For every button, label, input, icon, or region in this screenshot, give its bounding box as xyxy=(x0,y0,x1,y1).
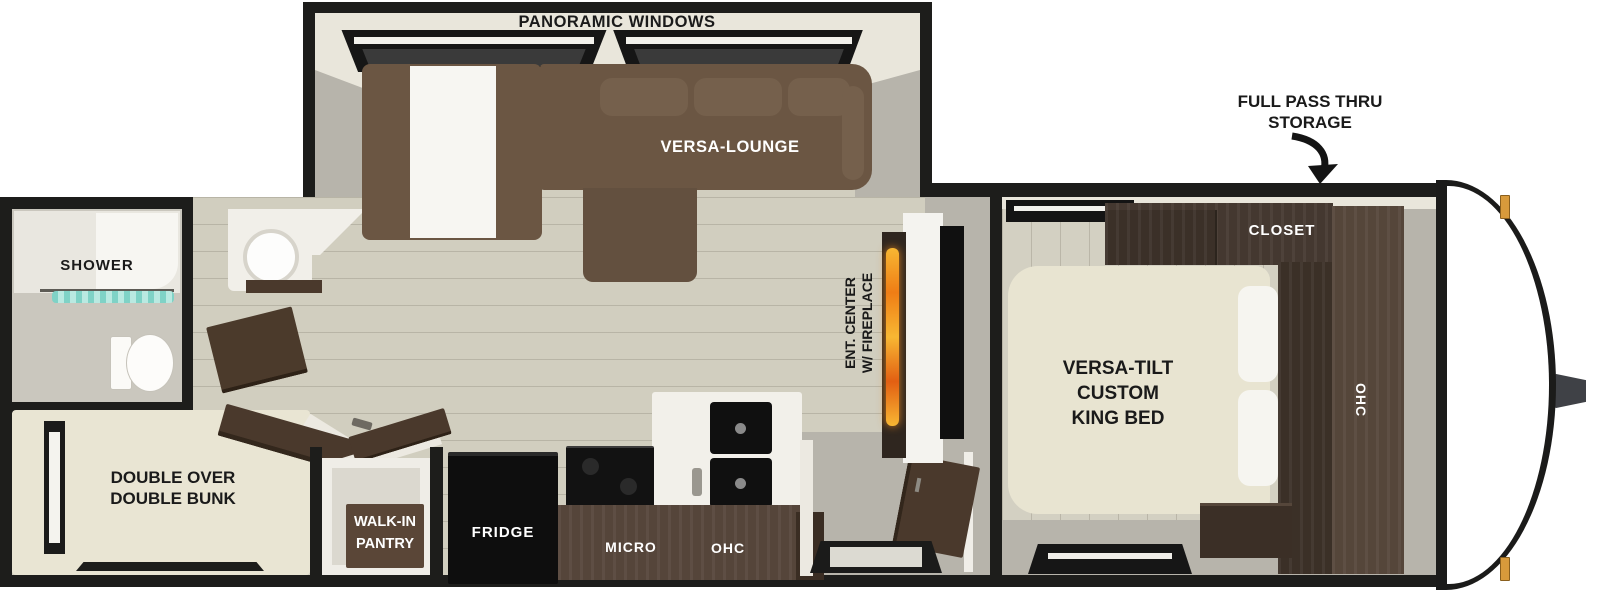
bunk-label-line1: DOUBLE OVER xyxy=(48,468,298,488)
panoramic-windows-label: PANORAMIC WINDOWS xyxy=(367,13,867,32)
micro-label: MICRO xyxy=(566,539,696,555)
stove-burner-icon2 xyxy=(620,478,637,495)
vanity-base xyxy=(246,280,322,293)
entry-wall-band xyxy=(800,440,813,576)
kitchen-ohc-label: OHC xyxy=(688,540,768,556)
shower-curtain xyxy=(52,291,174,303)
pillow-top xyxy=(1238,286,1278,382)
bunk-label-line2: DOUBLE BUNK xyxy=(48,489,298,509)
kitchen-faucet-icon xyxy=(692,468,702,496)
bedroom-ohc-label: OHC xyxy=(1353,370,1369,430)
storage-arrow-icon xyxy=(1282,132,1346,184)
sofa-bed-mattress xyxy=(410,66,496,238)
king-bed-label-line1: VERSA-TILT xyxy=(1018,358,1218,380)
fireplace-flame-icon xyxy=(886,248,899,426)
versa-lounge-label: VERSA-LOUNGE xyxy=(600,138,860,157)
bedroom-window-bottom-glass xyxy=(1048,553,1172,559)
floorplan-canvas: PANORAMIC WINDOWS SHOWER DOUBLE OVER DOU… xyxy=(0,0,1600,599)
toilet-bowl xyxy=(126,334,174,392)
pantry-wall-left xyxy=(310,447,322,587)
fridge xyxy=(448,452,558,584)
sofa-arm-right xyxy=(842,86,864,180)
nightstand xyxy=(1200,503,1292,558)
sofa-back-cushion3 xyxy=(788,78,850,116)
bunk-edge-trim xyxy=(76,562,264,571)
bedroom-window-bottom xyxy=(1028,544,1192,574)
closet-left-wing xyxy=(1105,210,1217,265)
stove xyxy=(566,446,654,508)
panoramic-window-right-glass xyxy=(626,37,852,44)
sofa-back-cushion1 xyxy=(600,78,688,116)
sink-drain-top-icon xyxy=(735,423,746,434)
ent-center-cabinet xyxy=(903,213,943,463)
tv-panel xyxy=(940,226,964,439)
sofa-back-cushion2 xyxy=(694,78,782,116)
pantry-label-line1: WALK-IN xyxy=(346,514,424,530)
king-bed-label-line3: KING BED xyxy=(1018,408,1218,430)
bathroom-sink xyxy=(243,229,299,285)
entry-step-tread xyxy=(830,547,922,567)
sink-drain-bottom-icon xyxy=(735,478,746,489)
versa-lounge-chaise xyxy=(583,188,697,282)
pillow-bottom xyxy=(1238,390,1278,486)
ent-center-label-line2: W/ FIREPLACE xyxy=(859,248,876,398)
storage-label-line2: STORAGE xyxy=(1200,113,1420,133)
ent-center-label-line1: ENT. CENTER xyxy=(842,248,859,398)
storage-label-line1: FULL PASS THRU xyxy=(1200,92,1420,112)
panoramic-window-left-glass xyxy=(354,37,594,44)
pantry-label-line2: PANTRY xyxy=(346,536,424,552)
front-cap xyxy=(1447,186,1549,584)
ent-center-label: ENT. CENTER W/ FIREPLACE xyxy=(842,248,878,398)
slide-side-wall-left xyxy=(315,70,362,197)
shower-label: SHOWER xyxy=(14,257,180,274)
pantry-wall-right xyxy=(430,447,443,587)
fridge-label: FRIDGE xyxy=(448,524,558,541)
stove-burner-icon xyxy=(582,458,599,475)
shower-pan xyxy=(96,213,178,289)
marker-light-bottom-icon xyxy=(1500,557,1510,581)
closet-label: CLOSET xyxy=(1212,222,1352,239)
king-bed-label-line2: CUSTOM xyxy=(1018,383,1218,405)
marker-light-top-icon xyxy=(1500,195,1510,219)
